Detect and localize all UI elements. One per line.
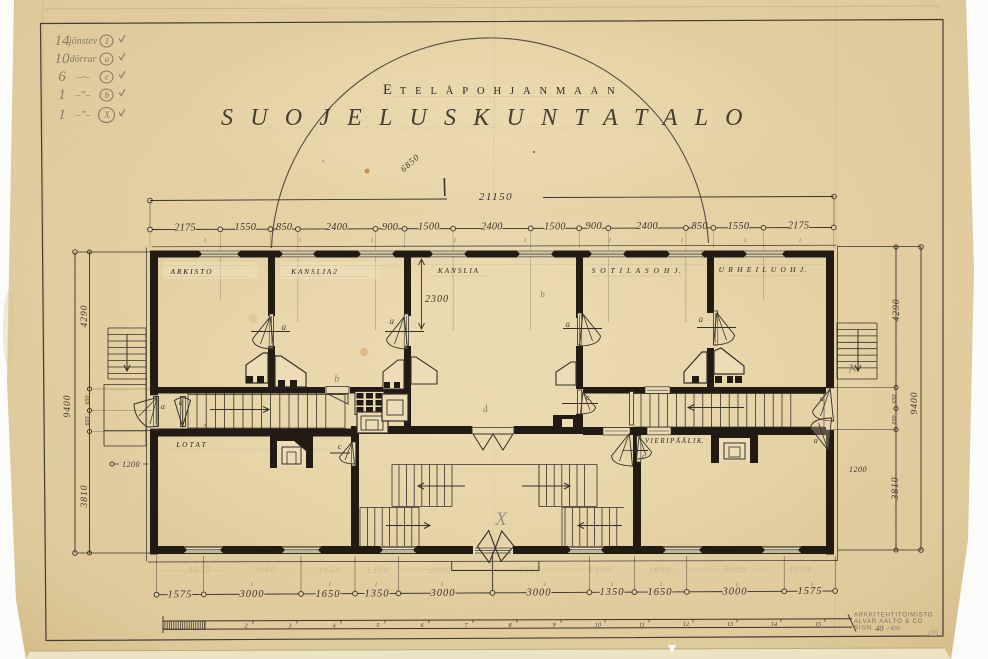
svg-text:1350: 1350 xyxy=(589,566,612,576)
svg-text:1: 1 xyxy=(453,237,456,244)
svg-text:U R H E I L U O H J.: U R H E I L U O H J. xyxy=(719,265,808,274)
svg-text:1550: 1550 xyxy=(728,221,750,232)
svg-text:4290: 4290 xyxy=(892,299,902,322)
svg-text:/25: /25 xyxy=(927,629,938,638)
svg-text:1575: 1575 xyxy=(789,566,812,576)
svg-text:900: 900 xyxy=(586,221,602,232)
svg-text:3810: 3810 xyxy=(891,477,901,501)
svg-text:10: 10 xyxy=(55,51,71,67)
svg-text:9: 9 xyxy=(552,622,555,629)
svg-text:1: 1 xyxy=(370,237,373,244)
svg-text:a: a xyxy=(814,435,819,445)
svg-text:a: a xyxy=(105,54,110,64)
svg-text:b: b xyxy=(105,90,110,100)
svg-text:A R K I S T O: A R K I S T O xyxy=(170,267,213,276)
svg-text:1575: 1575 xyxy=(168,590,193,601)
svg-text:21150: 21150 xyxy=(479,191,513,203)
svg-text:3000: 3000 xyxy=(430,588,456,599)
svg-text:/ 435: / 435 xyxy=(886,625,901,632)
svg-text:K A N S L I A: K A N S L I A xyxy=(437,266,479,275)
svg-text:10: 10 xyxy=(595,621,602,628)
svg-text:a: a xyxy=(179,397,184,407)
svg-text:3000: 3000 xyxy=(253,566,277,576)
svg-text:1: 1 xyxy=(105,36,110,46)
svg-text:1: 1 xyxy=(523,237,526,244)
svg-text:1: 1 xyxy=(608,237,611,244)
svg-text:b: b xyxy=(334,374,340,385)
svg-text:c: c xyxy=(586,392,590,402)
svg-text:1: 1 xyxy=(610,581,613,588)
svg-text:1350: 1350 xyxy=(365,589,390,600)
svg-text:c: c xyxy=(105,72,109,82)
svg-text:1: 1 xyxy=(798,237,801,244)
svg-text:13: 13 xyxy=(727,621,733,628)
svg-text:jönstev: jönstev xyxy=(67,36,98,47)
svg-text:650: 650 xyxy=(85,417,91,426)
svg-text:a: a xyxy=(699,314,704,324)
svg-text:2400: 2400 xyxy=(326,222,348,233)
svg-text:–”–: –”– xyxy=(74,110,92,121)
svg-text:1: 1 xyxy=(58,87,66,103)
svg-text:3000: 3000 xyxy=(722,587,748,598)
svg-text:1650: 1650 xyxy=(316,589,341,600)
svg-text:2400: 2400 xyxy=(481,222,503,233)
svg-text:K A N S L I A 2: K A N S L I A 2 xyxy=(290,267,337,276)
svg-text:14: 14 xyxy=(771,621,777,628)
svg-text:3: 3 xyxy=(287,622,291,629)
svg-text:2175: 2175 xyxy=(174,222,196,233)
svg-text:X: X xyxy=(494,509,508,530)
svg-text:1: 1 xyxy=(680,237,683,244)
svg-text:3000: 3000 xyxy=(526,588,552,599)
svg-text:1350: 1350 xyxy=(600,587,625,598)
svg-text:11: 11 xyxy=(639,621,645,628)
svg-text:1550: 1550 xyxy=(235,222,257,233)
svg-text:2175: 2175 xyxy=(788,221,810,232)
svg-text:c: c xyxy=(338,441,342,451)
svg-text:1: 1 xyxy=(250,581,253,588)
svg-text:1: 1 xyxy=(543,581,546,588)
svg-text:SIGN.: SIGN. xyxy=(854,626,875,632)
svg-text:1: 1 xyxy=(743,237,746,244)
svg-text:1: 1 xyxy=(58,107,66,123)
svg-text:1200: 1200 xyxy=(122,460,140,469)
svg-text:2400: 2400 xyxy=(636,221,658,232)
svg-text:a: a xyxy=(161,401,166,411)
svg-text:1650: 1650 xyxy=(519,566,542,576)
svg-text:a: a xyxy=(820,393,825,403)
svg-text:1200: 1200 xyxy=(849,465,867,474)
svg-text:900: 900 xyxy=(382,222,398,233)
svg-text:3000: 3000 xyxy=(428,566,452,576)
svg-text:L O T A T: L O T A T xyxy=(175,440,206,449)
svg-text:3810: 3810 xyxy=(80,485,90,509)
svg-text:650: 650 xyxy=(85,396,91,405)
svg-text:40: 40 xyxy=(875,623,884,633)
svg-text:2: 2 xyxy=(244,623,247,630)
svg-text:1: 1 xyxy=(659,581,662,588)
svg-text:–”–: –”– xyxy=(74,90,92,101)
svg-text:1: 1 xyxy=(203,237,206,244)
svg-text:1: 1 xyxy=(440,581,443,588)
svg-text:850: 850 xyxy=(276,222,292,233)
svg-text:1500: 1500 xyxy=(544,221,566,232)
svg-text:1: 1 xyxy=(374,581,377,588)
svg-text:650: 650 xyxy=(892,416,898,425)
svg-text:14: 14 xyxy=(55,33,71,49)
svg-text:2300: 2300 xyxy=(425,294,449,305)
svg-text:a: a xyxy=(566,319,571,329)
svg-text:–·–: –·– xyxy=(76,72,91,83)
svg-text:SUOJELUSKUNTATALO: SUOJELUSKUNTATALO xyxy=(221,105,760,131)
svg-text:ARKKITEHTITOIMISTO: ARKKITEHTITOIMISTO xyxy=(854,613,933,619)
svg-text:6: 6 xyxy=(58,69,66,85)
svg-text:c: c xyxy=(642,452,646,461)
svg-text:4290: 4290 xyxy=(80,305,90,328)
svg-text:dörrar: dörrar xyxy=(70,54,97,65)
svg-text:1350: 1350 xyxy=(367,566,390,576)
svg-text:1500: 1500 xyxy=(418,222,440,233)
svg-text:3000: 3000 xyxy=(239,589,265,600)
svg-text:1: 1 xyxy=(298,237,301,244)
svg-text:9400: 9400 xyxy=(910,392,920,415)
svg-text:1650: 1650 xyxy=(649,566,672,576)
svg-text:650: 650 xyxy=(892,395,898,404)
svg-text:9400: 9400 xyxy=(63,395,73,418)
svg-text:15: 15 xyxy=(815,621,821,628)
svg-text:12: 12 xyxy=(683,621,689,628)
svg-text:1: 1 xyxy=(810,581,813,588)
svg-text:X: X xyxy=(103,110,110,120)
svg-text:1575: 1575 xyxy=(189,566,212,576)
svg-text:V I E R I P Ä Ä L I K.: V I E R I P Ä Ä L I K. xyxy=(645,438,704,445)
svg-text:4: 4 xyxy=(332,622,335,629)
svg-text:1650: 1650 xyxy=(648,587,673,598)
svg-text:1650: 1650 xyxy=(319,566,342,576)
svg-text:1: 1 xyxy=(328,581,331,588)
svg-text:850: 850 xyxy=(692,221,708,232)
svg-text:a: a xyxy=(390,316,395,326)
svg-text:5: 5 xyxy=(376,622,379,629)
svg-text:a: a xyxy=(282,322,287,332)
svg-text:3000: 3000 xyxy=(723,566,747,576)
svg-text:S O T I L A S O H J.: S O T I L A S O H J. xyxy=(592,266,683,275)
svg-text:1: 1 xyxy=(735,581,738,588)
